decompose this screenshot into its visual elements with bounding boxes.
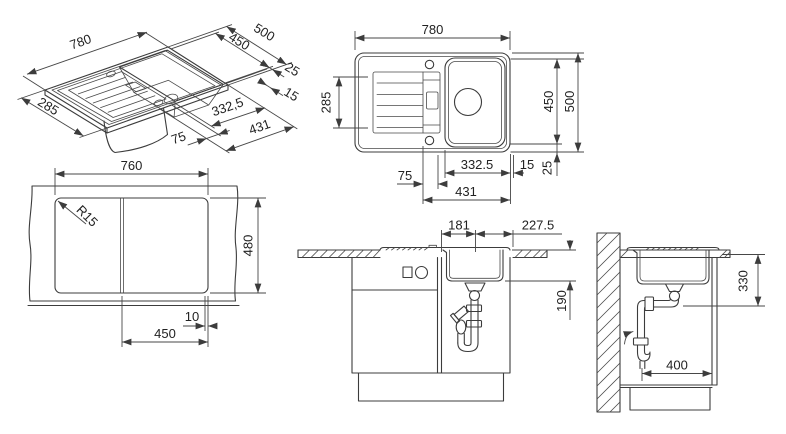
front-cabinet [352, 258, 510, 402]
drawing-canvas: 780 285 500 450 25 15 75 332,5 431 [0, 0, 786, 434]
plan-dim-height-inner: 450 [541, 91, 556, 113]
side-drain-flange [666, 284, 684, 292]
cutout-dim-width: 760 [121, 158, 143, 173]
cutout-view: 760 R15 480 10 450 [28, 158, 266, 347]
front-view: 181 227.5 190 [298, 218, 576, 402]
plan-sink [355, 53, 510, 152]
front-knob [416, 267, 428, 279]
plan-dim-bowl-center: 332.5 [461, 157, 494, 172]
front-sink-profile [380, 245, 510, 281]
front-trap-ball [470, 291, 480, 301]
front-dimensions: 181 227.5 190 [442, 218, 577, 321]
side-cabinet [620, 258, 717, 411]
side-dim-trap-height: 330 [736, 270, 751, 292]
front-drain-flange [465, 283, 485, 291]
cutout-dim-offset: 10 [185, 309, 199, 324]
iso-bowl [119, 50, 223, 101]
cutout-dim-section: 450 [154, 326, 176, 341]
side-sink [627, 248, 719, 292]
side-dimensions: 330 400 [642, 255, 765, 382]
side-wall [597, 233, 620, 412]
plan-drain [455, 89, 482, 116]
front-dim-left: 181 [448, 218, 470, 233]
plan-overflow [427, 92, 439, 109]
plan-drainboard-grooves [377, 72, 440, 133]
plan-dim-width: 780 [422, 22, 444, 37]
plan-dim-bowl-total: 431 [455, 184, 477, 199]
plan-view: 780 285 450 500 25 332.5 15 75 431 [319, 22, 585, 204]
front-trap [450, 283, 485, 352]
iso-dim-width: 780 [68, 31, 93, 52]
side-view: 330 400 [597, 233, 765, 412]
cutout-dim-height: 480 [241, 235, 256, 257]
cutout-dim-radius: R15 [73, 202, 100, 229]
technical-drawing: 780 285 500 450 25 15 75 332,5 431 [0, 0, 786, 434]
front-dim-bowl-depth: 190 [554, 290, 569, 312]
iso-dim-side-inner: 450 [226, 29, 252, 53]
side-dim-clearance: 400 [666, 358, 688, 373]
plan-dim-height-outer: 500 [562, 91, 577, 113]
front-worktop [298, 250, 547, 258]
side-bowl [633, 250, 709, 284]
iso-dim-bowl-center: 332,5 [210, 94, 246, 119]
iso-dim-bowl-total: 431 [247, 116, 272, 137]
plan-tap-hole [425, 60, 433, 68]
plan-dim-drainboard: 285 [319, 92, 334, 114]
iso-dimensions: 780 285 500 450 25 15 75 332,5 431 [18, 20, 303, 153]
iso-dim-side-outer: 500 [251, 20, 277, 44]
front-bowl [443, 250, 503, 281]
plan-dim-left-offset: 75 [398, 168, 412, 183]
iso-dim-left-offset: 75 [169, 128, 188, 147]
iso-dim-side-gap: 25 [282, 59, 302, 79]
front-handle [403, 267, 412, 278]
iso-dim-rim: 15 [281, 84, 301, 104]
plan-tap-hole [425, 136, 433, 144]
plan-dim-rim: 15 [520, 157, 534, 172]
cutout-worktop [28, 186, 239, 306]
iso-sink-outline [45, 47, 228, 153]
front-dim-right: 227.5 [522, 218, 555, 233]
isometric-view: 780 285 500 450 25 15 75 332,5 431 [18, 20, 303, 153]
plan-dim-gap: 25 [540, 161, 555, 175]
